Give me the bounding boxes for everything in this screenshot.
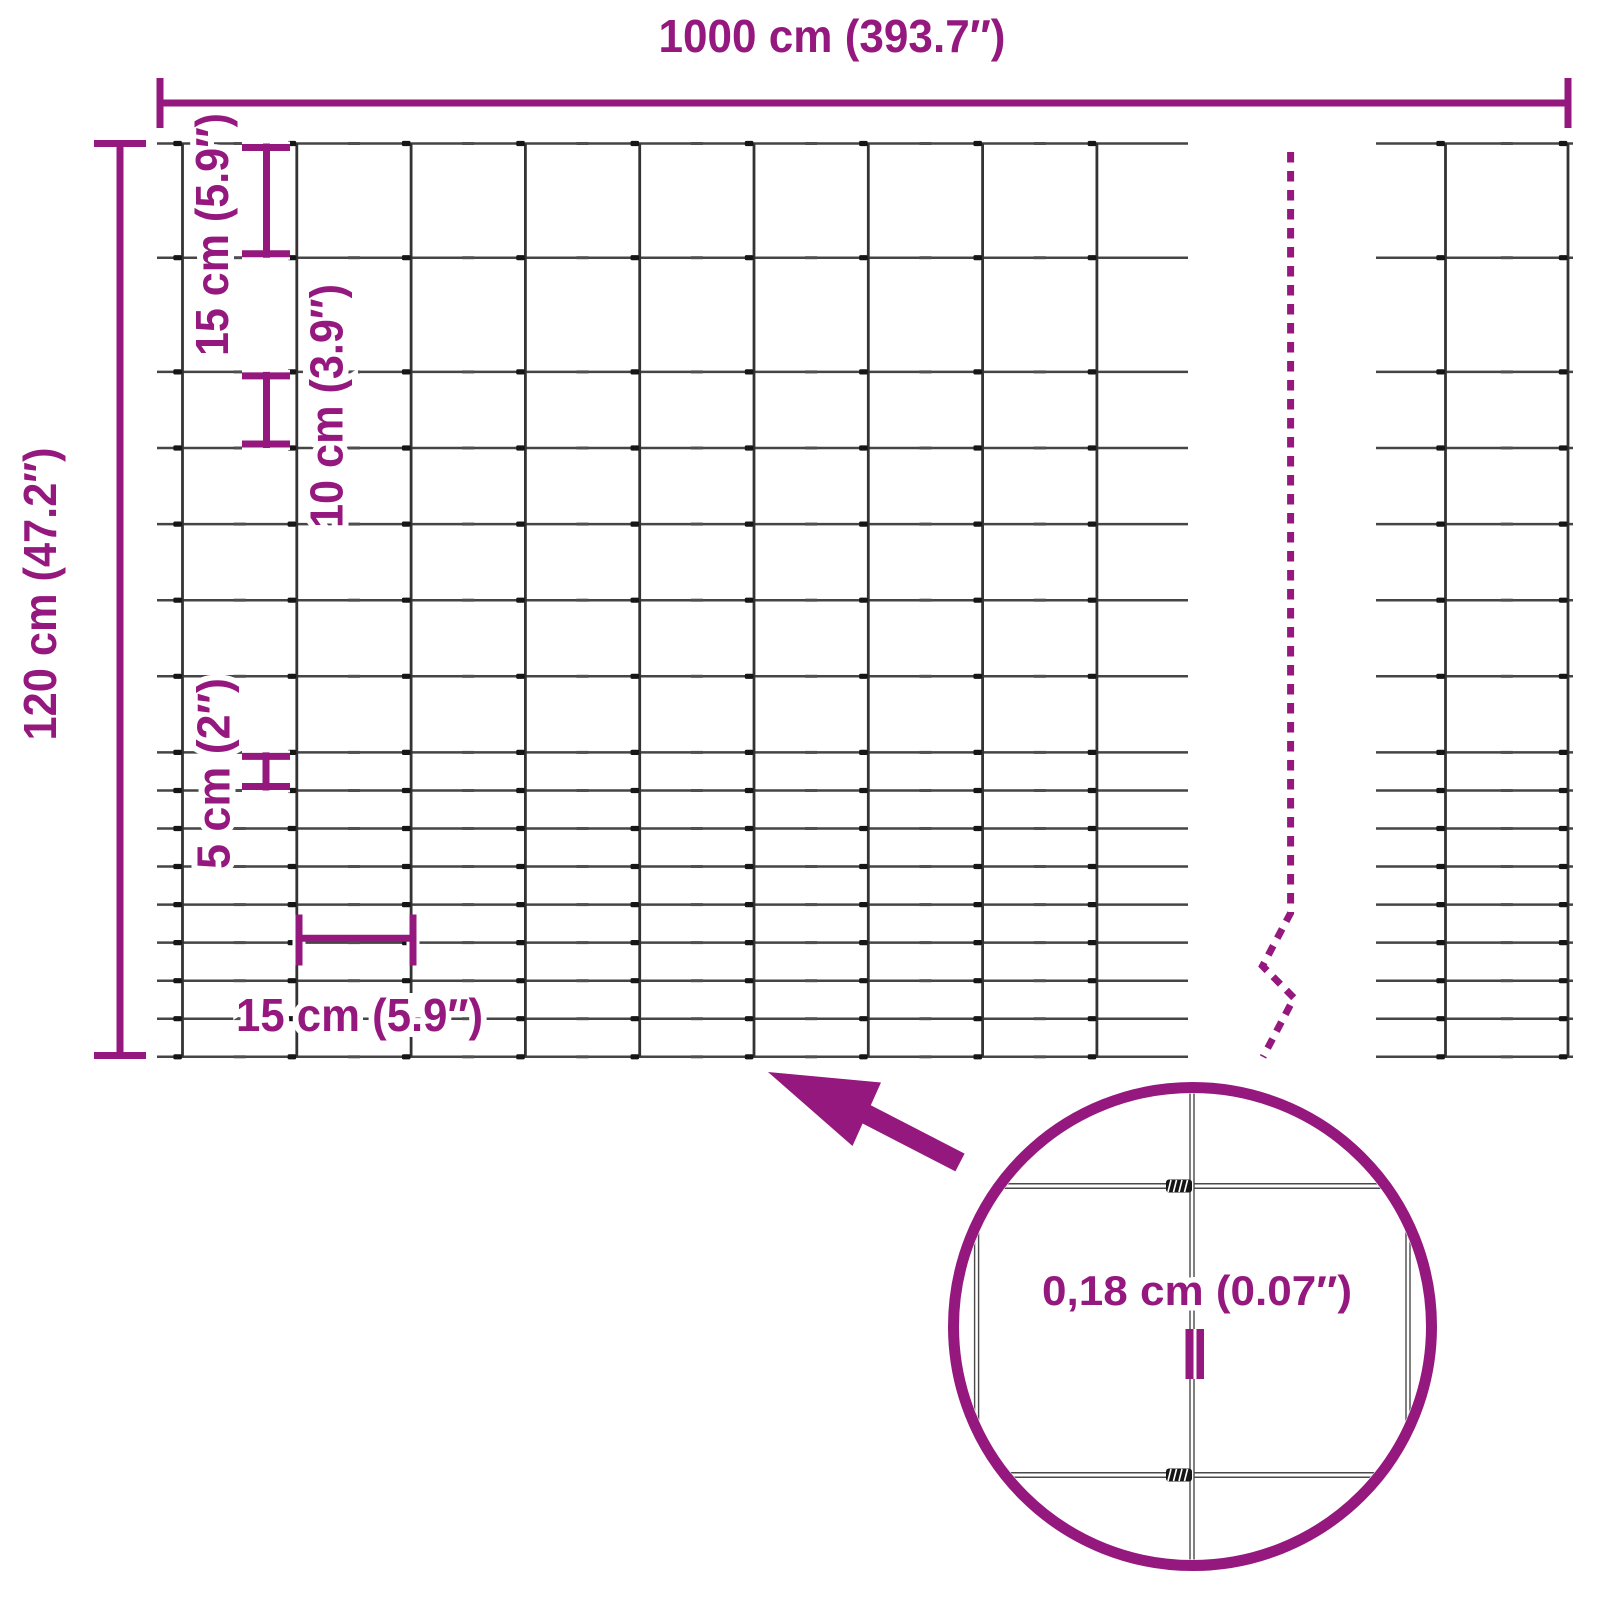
- svg-text:5 cm (2″): 5 cm (2″): [188, 678, 240, 869]
- svg-text:10 cm (3.9″): 10 cm (3.9″): [301, 284, 353, 528]
- svg-text:1000 cm (393.7″): 1000 cm (393.7″): [659, 10, 1006, 62]
- svg-text:15 cm (5.9″): 15 cm (5.9″): [236, 989, 483, 1041]
- svg-text:0,18 cm (0.07″): 0,18 cm (0.07″): [1042, 1267, 1352, 1314]
- svg-text:120 cm (47.2″): 120 cm (47.2″): [14, 448, 66, 741]
- svg-text:15 cm (5.9″): 15 cm (5.9″): [186, 113, 238, 356]
